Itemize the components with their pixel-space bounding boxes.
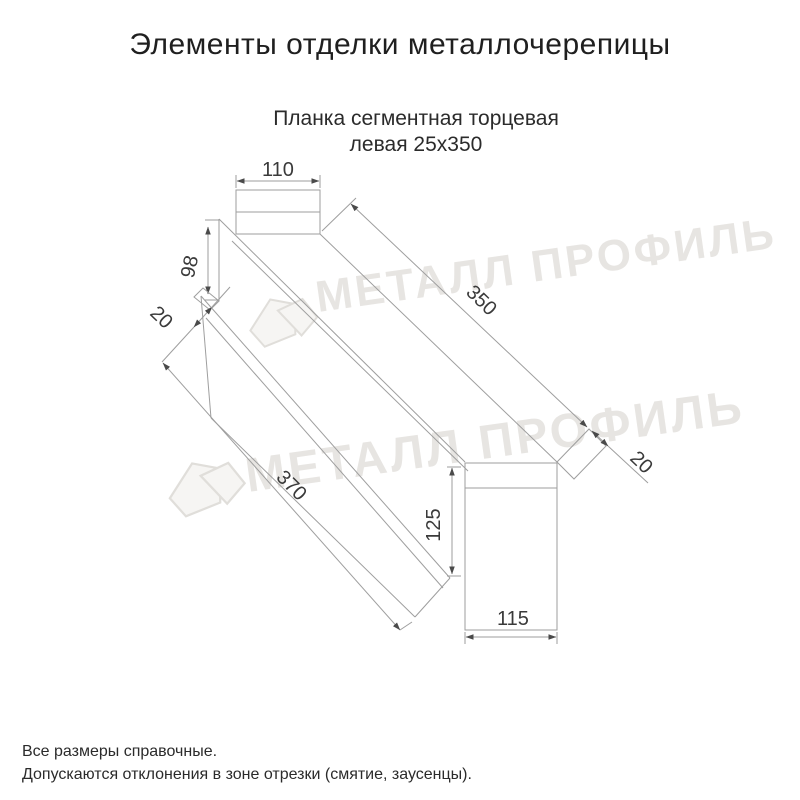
dim-110: 110 bbox=[236, 159, 320, 188]
dim-115: 115 bbox=[465, 608, 557, 644]
watermark-lower: МЕТАЛЛ ПРОФИЛЬ bbox=[165, 380, 747, 518]
technical-drawing: МЕТАЛЛ ПРОФИЛЬ МЕТАЛЛ ПРОФИЛЬ 110 bbox=[0, 0, 800, 800]
watermark-text: МЕТАЛЛ ПРОФИЛЬ bbox=[242, 380, 748, 503]
product-drawing-page: Элементы отделки металлочерепицы Планка … bbox=[0, 0, 800, 800]
dim-115-label: 115 bbox=[497, 608, 529, 630]
footnote-line1: Все размеры справочные. bbox=[22, 740, 472, 763]
dim-20-right-label: 20 bbox=[626, 447, 657, 478]
dim-20-left-label: 20 bbox=[146, 302, 177, 333]
left-end-section bbox=[236, 190, 320, 234]
watermark-upper: МЕТАЛЛ ПРОФИЛЬ bbox=[246, 209, 779, 349]
footnote-line2: Допускаются отклонения в зоне отрезки (с… bbox=[22, 763, 472, 786]
dim-98-label: 98 bbox=[177, 254, 203, 280]
watermark-logo-icon bbox=[165, 457, 248, 519]
dim-110-label: 110 bbox=[262, 159, 294, 181]
footnotes: Все размеры справочные. Допускаются откл… bbox=[22, 740, 472, 786]
watermark-text: МЕТАЛЛ ПРОФИЛЬ bbox=[313, 209, 780, 322]
dim-20-left: 20 bbox=[146, 287, 230, 362]
dim-125: 125 bbox=[423, 467, 461, 576]
watermark-logo-icon bbox=[246, 293, 320, 348]
left-edge bbox=[205, 219, 219, 301]
dim-125-label: 125 bbox=[423, 508, 445, 541]
left-fold bbox=[194, 288, 219, 310]
right-end-section bbox=[465, 463, 557, 630]
dim-98: 98 bbox=[177, 227, 208, 294]
